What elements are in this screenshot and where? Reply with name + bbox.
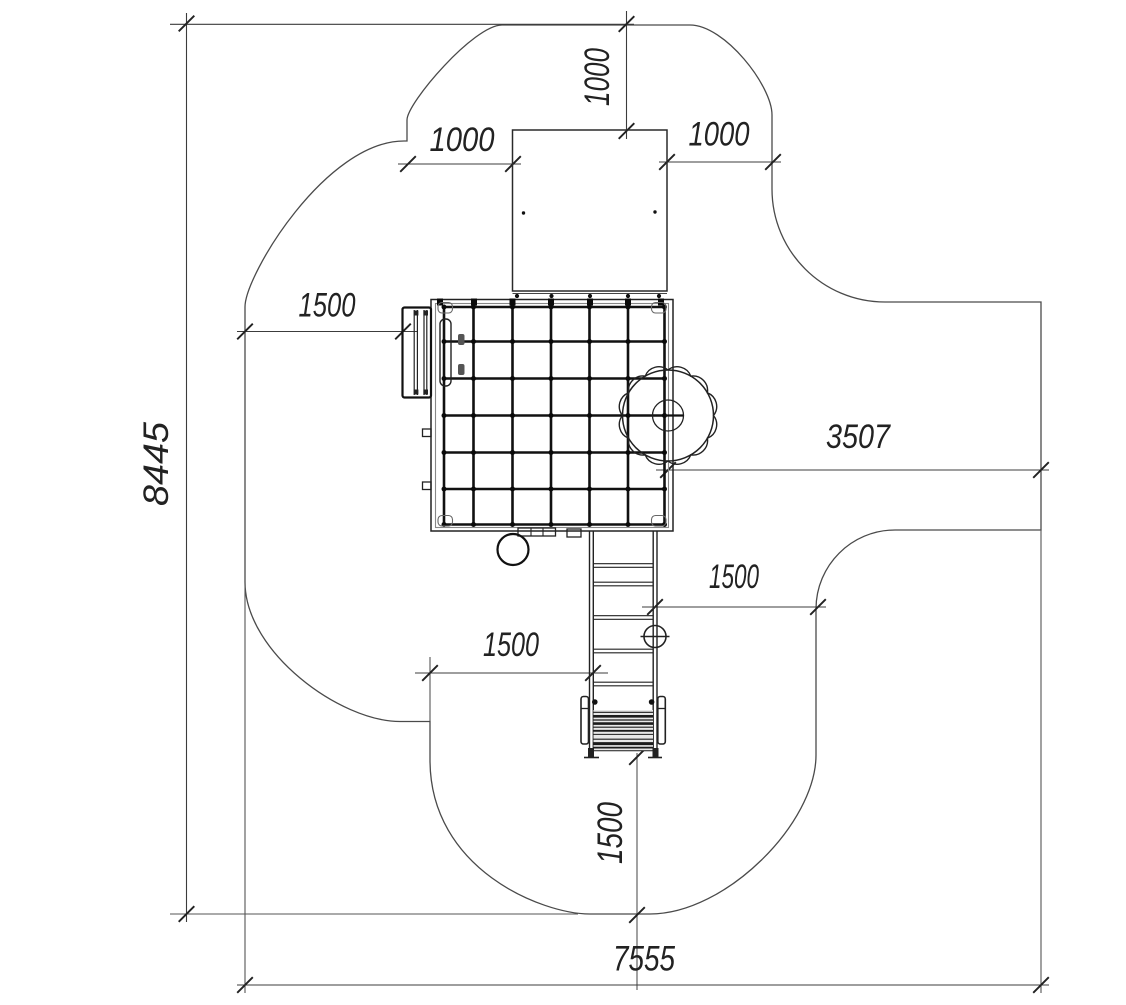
svg-text:3507: 3507 [826, 418, 891, 456]
svg-text:1000: 1000 [689, 116, 750, 154]
svg-text:8445: 8445 [137, 421, 176, 506]
svg-text:1000: 1000 [430, 121, 495, 159]
svg-text:1000: 1000 [578, 48, 617, 106]
svg-text:1500: 1500 [483, 626, 539, 664]
svg-text:1500: 1500 [299, 287, 356, 325]
svg-text:7555: 7555 [613, 940, 675, 979]
svg-text:1500: 1500 [591, 802, 630, 864]
svg-text:1500: 1500 [709, 558, 759, 596]
